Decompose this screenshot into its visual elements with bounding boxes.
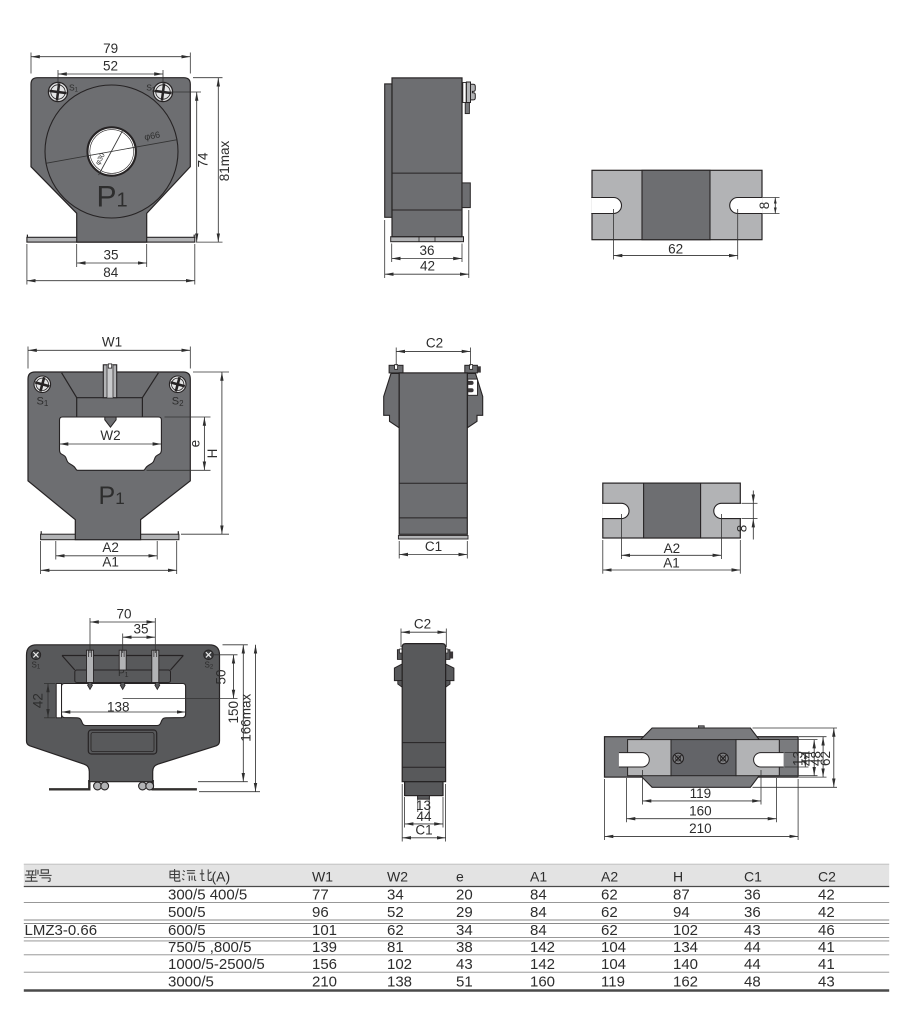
- svg-text:8: 8: [735, 525, 750, 533]
- svg-text:46: 46: [818, 922, 835, 939]
- svg-text:A1: A1: [663, 556, 680, 571]
- svg-text:43: 43: [744, 922, 761, 939]
- svg-text:3000/5: 3000/5: [168, 974, 214, 991]
- svg-text:62: 62: [668, 241, 683, 256]
- svg-text:52: 52: [387, 904, 404, 921]
- svg-text:81max: 81max: [217, 140, 232, 181]
- svg-text:79: 79: [103, 41, 118, 56]
- svg-text:43: 43: [818, 974, 835, 991]
- svg-text:43: 43: [456, 956, 473, 973]
- svg-text:62: 62: [601, 887, 618, 904]
- svg-text:51: 51: [456, 974, 473, 991]
- svg-text:29: 29: [456, 904, 473, 921]
- svg-text:42: 42: [30, 693, 45, 708]
- svg-text:42: 42: [420, 259, 435, 274]
- svg-text:W2: W2: [387, 869, 408, 885]
- svg-text:e: e: [188, 440, 203, 448]
- svg-text:e: e: [456, 869, 464, 885]
- svg-text:160: 160: [689, 804, 712, 819]
- svg-text:38: 38: [456, 939, 473, 956]
- svg-text:35: 35: [103, 247, 118, 262]
- svg-text:48: 48: [744, 974, 761, 991]
- svg-text:156: 156: [312, 956, 337, 973]
- svg-text:70: 70: [116, 606, 131, 621]
- svg-text:42: 42: [818, 887, 835, 904]
- svg-text:34: 34: [456, 922, 473, 939]
- svg-text:36: 36: [419, 243, 434, 258]
- svg-text:142: 142: [530, 956, 555, 973]
- svg-text:62: 62: [818, 751, 833, 766]
- svg-text:C2: C2: [414, 617, 431, 632]
- svg-text:8: 8: [757, 202, 772, 210]
- svg-text:C2: C2: [426, 336, 443, 351]
- svg-text:119: 119: [601, 974, 625, 991]
- svg-text:41: 41: [818, 956, 835, 973]
- svg-text:A2: A2: [664, 541, 681, 556]
- svg-text:166max: 166max: [238, 693, 253, 741]
- svg-text:35: 35: [133, 622, 148, 637]
- svg-text:500/5: 500/5: [168, 904, 206, 921]
- svg-text:104: 104: [601, 939, 626, 956]
- svg-text:41: 41: [818, 939, 835, 956]
- svg-text:140: 140: [673, 956, 698, 973]
- svg-text:102: 102: [387, 956, 412, 973]
- svg-text:36: 36: [744, 887, 761, 904]
- svg-text:52: 52: [103, 59, 118, 74]
- svg-text:101: 101: [312, 922, 337, 939]
- svg-text:C2: C2: [818, 869, 836, 885]
- svg-text:104: 104: [601, 956, 626, 973]
- svg-text:A1: A1: [530, 869, 547, 885]
- svg-text:77: 77: [312, 887, 329, 904]
- svg-text:LMZ3-0.66: LMZ3-0.66: [25, 922, 98, 939]
- svg-text:81: 81: [387, 939, 404, 956]
- svg-text:62: 62: [601, 922, 618, 939]
- svg-text:44: 44: [744, 939, 761, 956]
- svg-text:84: 84: [530, 922, 547, 939]
- svg-text:142: 142: [530, 939, 555, 956]
- svg-text:134: 134: [673, 939, 698, 956]
- svg-text:34: 34: [387, 887, 404, 904]
- svg-text:W1: W1: [312, 869, 333, 885]
- svg-text:74: 74: [196, 152, 211, 168]
- svg-text:(A): (A): [212, 869, 231, 885]
- svg-text:102: 102: [673, 922, 698, 939]
- svg-text:94: 94: [673, 904, 690, 921]
- svg-text:210: 210: [312, 974, 337, 991]
- svg-text:162: 162: [673, 974, 698, 991]
- svg-text:44: 44: [744, 956, 761, 973]
- svg-text:750/5 ,800/5: 750/5 ,800/5: [168, 939, 251, 956]
- svg-text:W1: W1: [102, 335, 122, 350]
- svg-text:87: 87: [673, 887, 690, 904]
- svg-text:C1: C1: [415, 823, 432, 838]
- svg-text:H: H: [205, 449, 220, 459]
- svg-text:600/5: 600/5: [168, 922, 206, 939]
- svg-text:84: 84: [530, 904, 547, 921]
- svg-text:160: 160: [530, 974, 555, 991]
- svg-text:138: 138: [107, 699, 130, 714]
- svg-text:42: 42: [818, 904, 835, 921]
- svg-text:50: 50: [214, 669, 229, 684]
- svg-text:300/5 400/5: 300/5 400/5: [168, 887, 247, 904]
- svg-text:20: 20: [456, 887, 473, 904]
- svg-text:119: 119: [690, 786, 712, 801]
- svg-text:210: 210: [689, 821, 712, 836]
- svg-text:138: 138: [387, 974, 412, 991]
- svg-text:C1: C1: [744, 869, 762, 885]
- svg-text:A2: A2: [102, 540, 119, 555]
- svg-text:139: 139: [312, 939, 337, 956]
- svg-text:84: 84: [530, 887, 547, 904]
- svg-text:1000/5-2500/5: 1000/5-2500/5: [168, 956, 265, 973]
- svg-text:36: 36: [744, 904, 761, 921]
- svg-text:84: 84: [103, 265, 119, 280]
- svg-text:W2: W2: [100, 428, 120, 443]
- svg-text:H: H: [673, 869, 683, 885]
- svg-text:62: 62: [601, 904, 618, 921]
- svg-text:C1: C1: [425, 539, 442, 554]
- svg-text:A2: A2: [601, 869, 618, 885]
- svg-text:62: 62: [387, 922, 404, 939]
- svg-text:96: 96: [312, 904, 329, 921]
- svg-text:A1: A1: [102, 555, 119, 570]
